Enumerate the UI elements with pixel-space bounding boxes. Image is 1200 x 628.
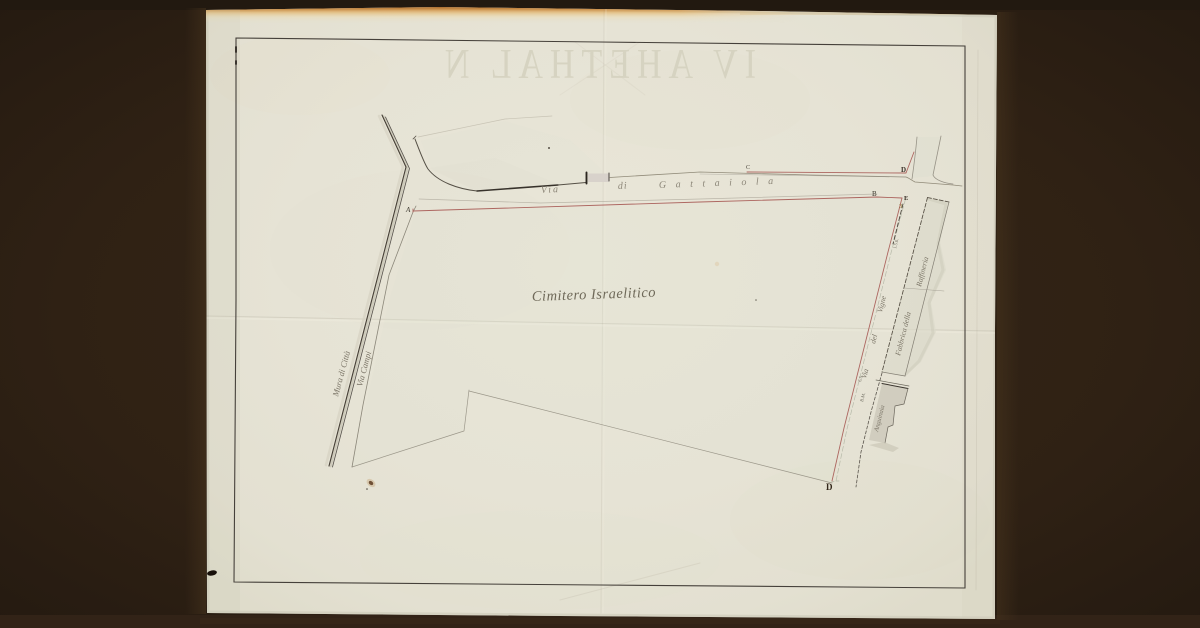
svg-text:3: 3 [899, 203, 902, 210]
svg-text:di: di [618, 180, 628, 191]
svg-text:D: D [826, 482, 833, 492]
svg-text:D: D [901, 166, 906, 174]
svg-text:E: E [904, 195, 908, 202]
svg-text:B: B [872, 190, 877, 198]
svg-text:C: C [746, 165, 750, 171]
svg-text:Via: Via [541, 184, 561, 196]
svg-text:A: A [405, 206, 411, 214]
svg-text:IV AHETHAL N: IV AHETHAL N [438, 42, 756, 88]
